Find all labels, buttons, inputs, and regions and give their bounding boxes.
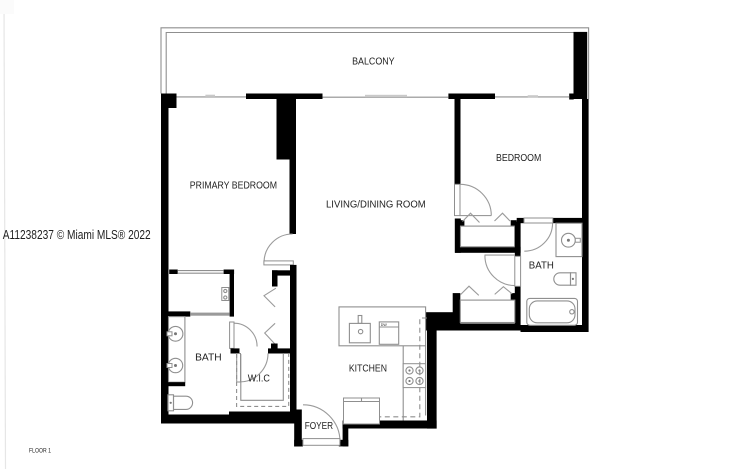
svg-text:BATH: BATH: [195, 352, 222, 363]
svg-text:FLOOR 1: FLOOR 1: [29, 447, 51, 454]
svg-text:PRIMARY BEDROOM: PRIMARY BEDROOM: [190, 181, 277, 192]
svg-text:BALCONY: BALCONY: [352, 56, 395, 67]
svg-text:FOYER: FOYER: [305, 421, 334, 432]
svg-text:DW: DW: [381, 323, 388, 327]
svg-text:A11238237 © Miami MLS® 2022: A11238237 © Miami MLS® 2022: [3, 227, 151, 242]
svg-text:W.I.C: W.I.C: [248, 373, 271, 384]
svg-text:BATH: BATH: [529, 260, 554, 271]
svg-text:KITCHEN: KITCHEN: [349, 363, 387, 374]
svg-text:BEDROOM: BEDROOM: [496, 153, 541, 164]
svg-text:LIVING/DINING ROOM: LIVING/DINING ROOM: [326, 199, 426, 210]
